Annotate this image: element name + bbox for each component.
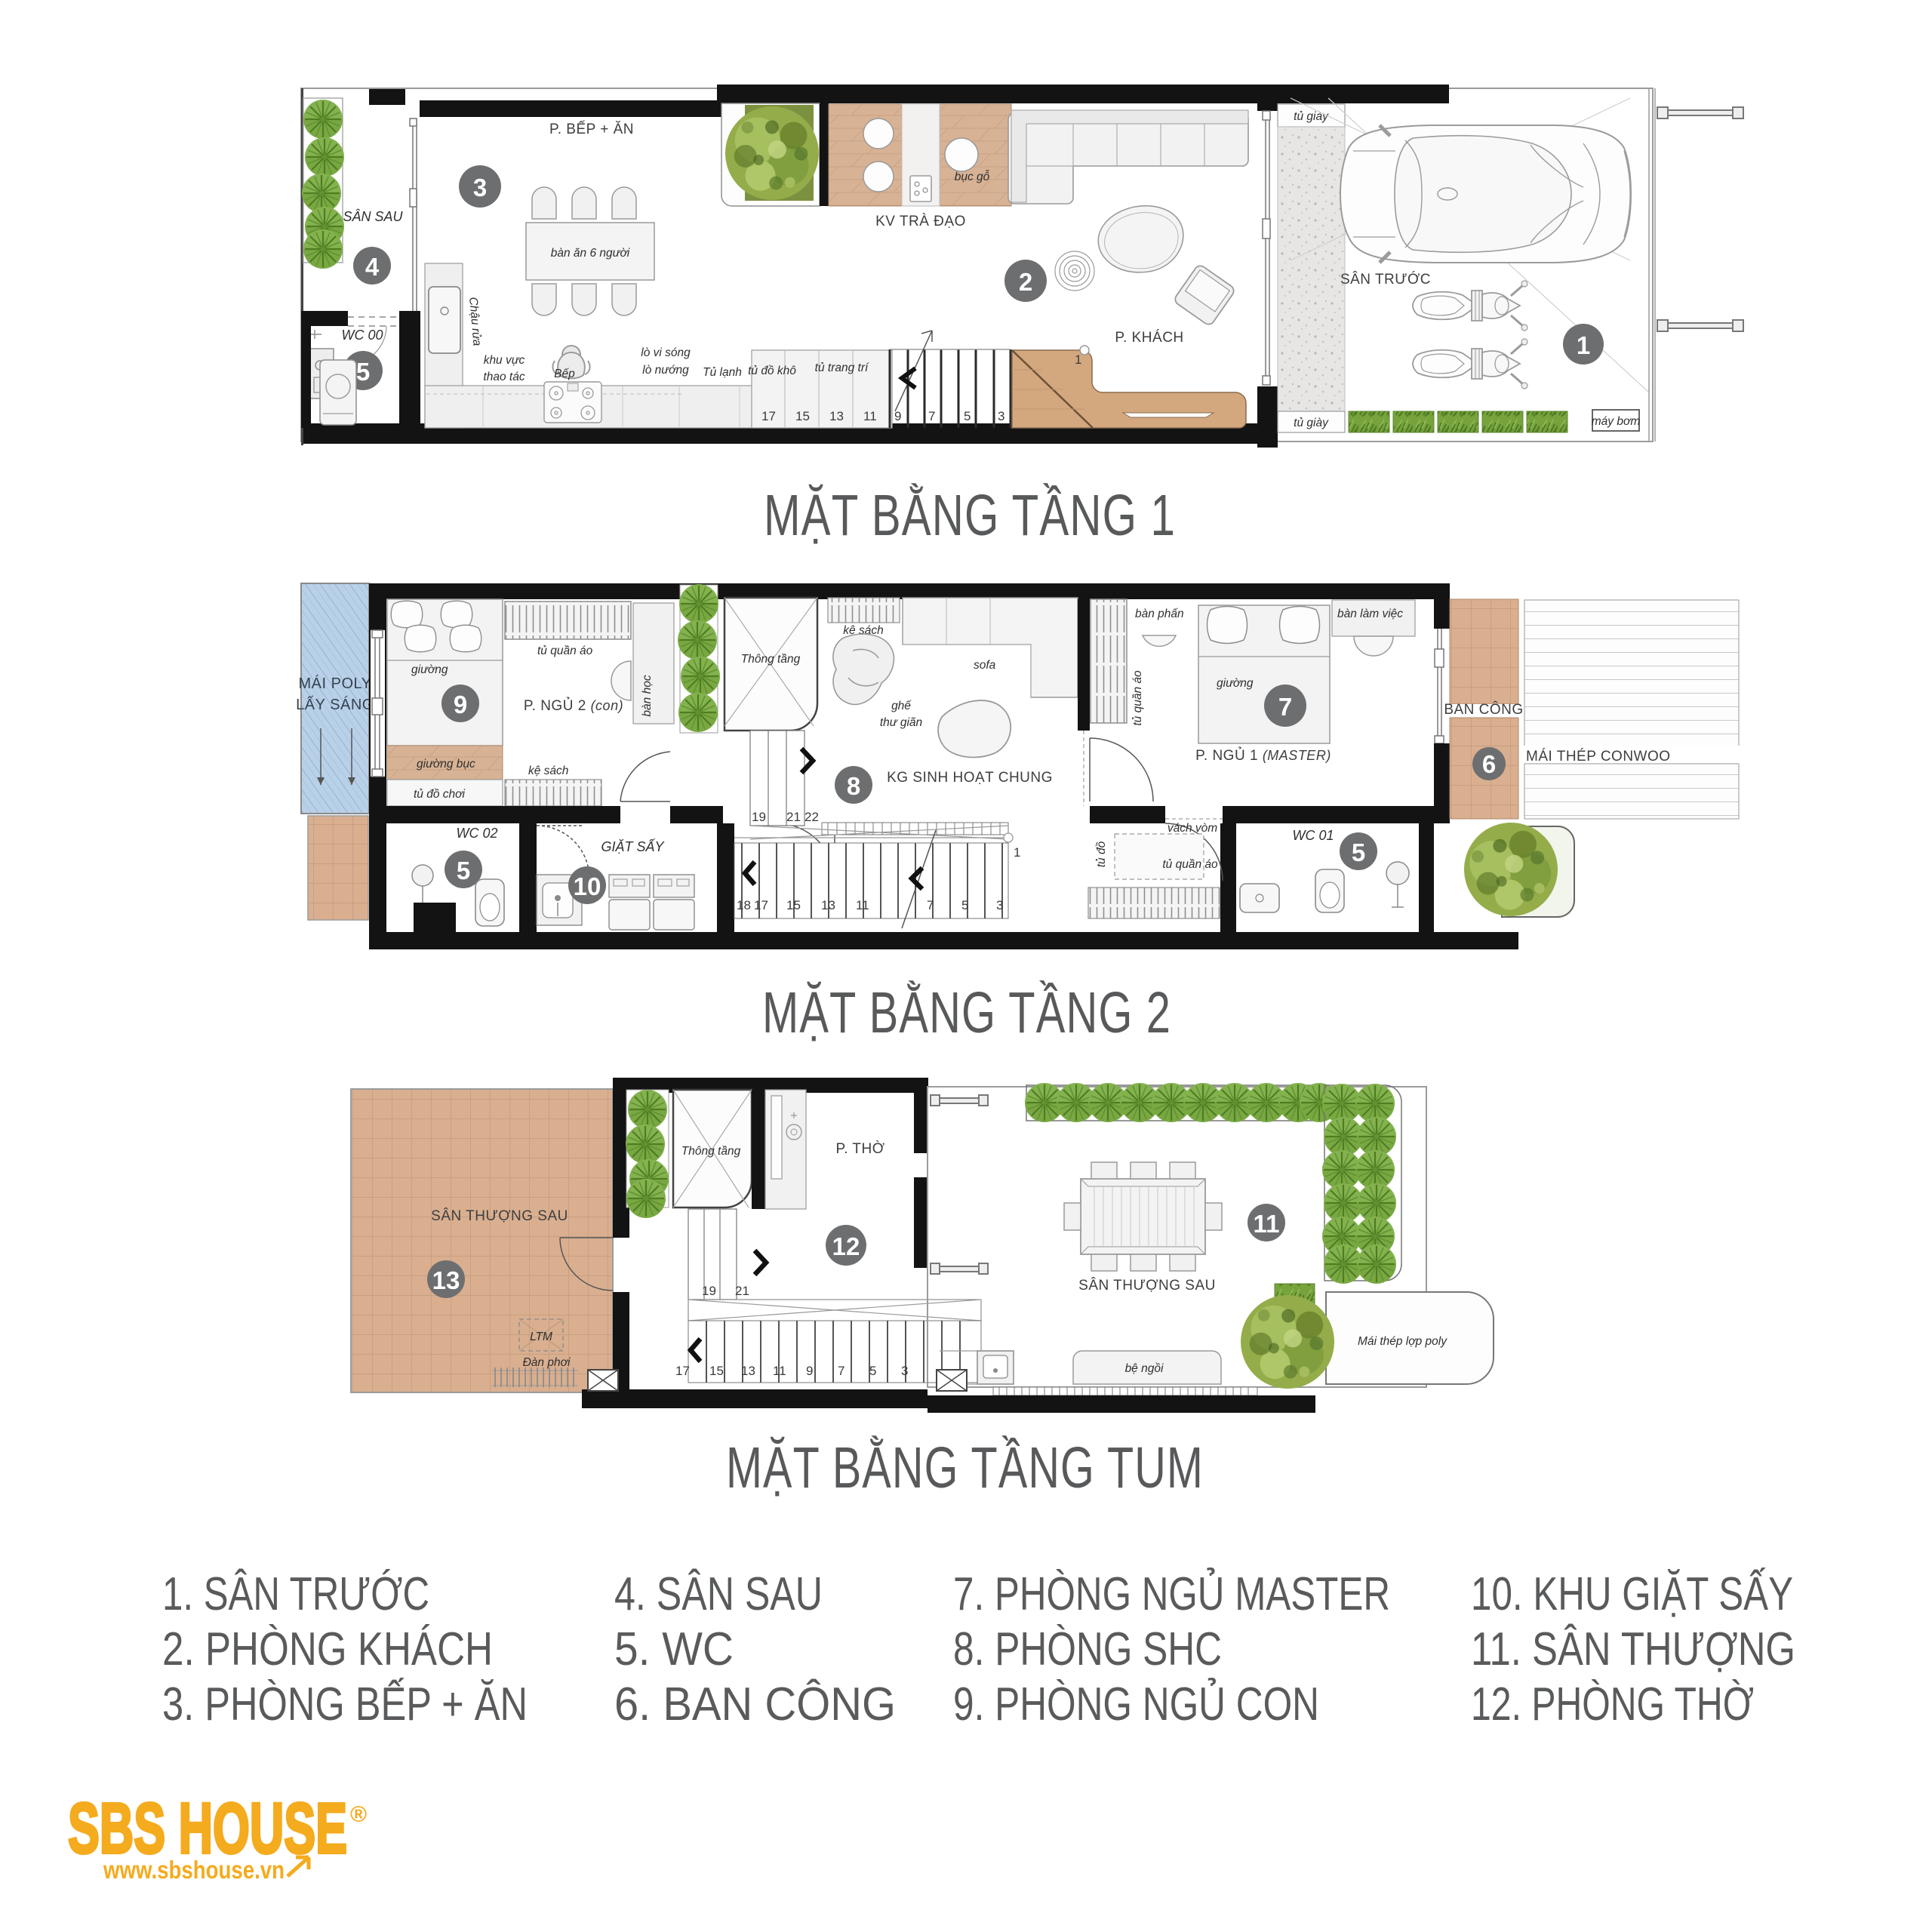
svg-text:Bếp: Bếp (554, 368, 575, 380)
svg-text:thao tác: thao tác (483, 371, 525, 383)
svg-text:15: 15 (795, 409, 810, 423)
svg-text:17: 17 (761, 409, 776, 423)
svg-text:Mái thép lợp poly: Mái thép lợp poly (1358, 1335, 1447, 1348)
svg-text:13: 13 (432, 1266, 460, 1294)
svg-text:8: 8 (847, 772, 860, 800)
svg-text:Thông tầng: Thông tầng (741, 653, 801, 666)
svg-text:5: 5 (961, 898, 968, 912)
svg-text:tủ đồ chơi: tủ đồ chơi (414, 788, 466, 801)
svg-text:1: 1 (1075, 352, 1081, 367)
svg-text:khu vực: khu vực (484, 354, 525, 367)
svg-text:tủ đồ: tủ đồ (1095, 841, 1108, 867)
svg-text:4. SÂN SAU: 4. SÂN SAU (614, 1568, 823, 1620)
svg-text:tủ quần áo: tủ quần áo (1131, 670, 1144, 726)
svg-text:tủ quần áo: tủ quần áo (537, 645, 593, 657)
svg-text:ghế: ghế (891, 700, 912, 712)
svg-text:3: 3 (996, 898, 1003, 912)
svg-text:P. NGỦ 2 (con): P. NGỦ 2 (con) (524, 697, 623, 714)
svg-text:15: 15 (709, 1364, 724, 1378)
svg-text:MẶT BẰNG TẦNG 1: MẶT BẰNG TẦNG 1 (764, 482, 1176, 548)
svg-text:9: 9 (894, 409, 901, 423)
svg-text:8. PHÒNG SHC: 8. PHÒNG SHC (953, 1623, 1222, 1675)
svg-text:SÂN TRƯỚC: SÂN TRƯỚC (1340, 271, 1431, 288)
svg-text:MẶT BẰNG TẦNG 2: MẶT BẰNG TẦNG 2 (762, 980, 1171, 1045)
svg-text:4: 4 (365, 253, 380, 281)
svg-text:giường: giường (411, 663, 448, 676)
svg-text:www.sbshouse.vn: www.sbshouse.vn (103, 1856, 285, 1884)
svg-text:bục gỗ: bục gỗ (955, 171, 990, 183)
svg-text:1. SÂN TRƯỚC: 1. SÂN TRƯỚC (162, 1568, 429, 1620)
svg-text:5: 5 (356, 358, 370, 386)
svg-text:11: 11 (863, 409, 877, 423)
svg-text:P. BẾP + ĂN: P. BẾP + ĂN (549, 121, 634, 137)
svg-text:tủ giày: tủ giày (1294, 417, 1329, 429)
svg-text:SÂN THƯỢNG SAU: SÂN THƯỢNG SAU (1078, 1277, 1216, 1294)
svg-text:21: 21 (735, 1284, 749, 1298)
svg-text:MẶT BẰNG TẦNG TUM: MẶT BẰNG TẦNG TUM (726, 1435, 1204, 1500)
svg-text:11: 11 (1254, 1210, 1280, 1238)
svg-text:17: 17 (675, 1364, 690, 1378)
svg-text:19: 19 (752, 810, 766, 824)
svg-text:6: 6 (1482, 750, 1496, 778)
svg-text:MÁI POLY: MÁI POLY (299, 675, 372, 692)
svg-text:3: 3 (473, 174, 487, 202)
svg-text:BAN CÔNG: BAN CÔNG (1444, 701, 1523, 718)
svg-text:7: 7 (927, 898, 934, 912)
svg-text:7: 7 (928, 409, 935, 423)
svg-text:5: 5 (869, 1364, 876, 1378)
svg-text:bàn phấn: bàn phấn (1135, 608, 1184, 620)
svg-text:LTM: LTM (530, 1331, 552, 1343)
svg-text:22: 22 (804, 810, 819, 824)
svg-text:P. THỜ: P. THỜ (835, 1140, 884, 1157)
svg-text:2. PHÒNG KHÁCH: 2. PHÒNG KHÁCH (162, 1623, 493, 1675)
svg-text:5: 5 (457, 857, 470, 884)
svg-text:5: 5 (1352, 838, 1365, 866)
svg-text:10: 10 (574, 872, 601, 900)
svg-text:15: 15 (786, 898, 801, 912)
svg-text:13: 13 (821, 898, 835, 912)
svg-text:Tủ lạnh: Tủ lạnh (703, 366, 742, 379)
svg-text:máy bơm: máy bơm (1592, 415, 1641, 428)
svg-text:tủ trang trí: tủ trang trí (815, 361, 869, 374)
svg-text:thư giãn: thư giãn (880, 716, 922, 729)
svg-text:13: 13 (741, 1364, 755, 1378)
svg-text:GIẶT SẤY: GIẶT SẤY (601, 838, 665, 854)
svg-text:sofa: sofa (974, 659, 996, 672)
svg-text:2: 2 (1019, 268, 1032, 296)
svg-text:3: 3 (901, 1364, 908, 1378)
svg-text:17: 17 (754, 898, 768, 912)
svg-text:bàn ăn 6 người: bàn ăn 6 người (551, 247, 630, 260)
svg-text:21: 21 (786, 810, 801, 824)
svg-text:18: 18 (737, 898, 751, 912)
svg-text:kệ sách: kệ sách (528, 764, 568, 777)
svg-text:7: 7 (1278, 693, 1292, 721)
svg-text:9. PHÒNG NGỦ CON: 9. PHÒNG NGỦ CON (953, 1678, 1319, 1730)
svg-text:P. NGỦ 1 (MASTER): P. NGỦ 1 (MASTER) (1195, 747, 1331, 764)
svg-text:®: ® (350, 1802, 367, 1827)
svg-text:3: 3 (998, 409, 1004, 423)
svg-text:11. SÂN THƯỢNG: 11. SÂN THƯỢNG (1471, 1623, 1795, 1675)
svg-text:6. BAN CÔNG: 6. BAN CÔNG (614, 1678, 896, 1730)
svg-text:1: 1 (1577, 331, 1590, 359)
svg-text:KV TRÀ ĐẠO: KV TRÀ ĐẠO (875, 214, 966, 229)
svg-text:bàn học: bàn học (641, 675, 654, 716)
svg-text:vách vòm: vách vòm (1168, 822, 1217, 835)
svg-text:tủ giày: tủ giày (1294, 110, 1329, 123)
svg-text:9: 9 (454, 691, 467, 718)
svg-text:MÁI THÉP CONWOO: MÁI THÉP CONWOO (1526, 749, 1671, 764)
svg-text:giường bục: giường bục (417, 758, 475, 771)
svg-text:WC 00: WC 00 (341, 328, 383, 343)
svg-text:5: 5 (964, 409, 971, 423)
svg-text:Đàn phơi: Đàn phơi (523, 1356, 571, 1369)
svg-text:LẤY SÁNG: LẤY SÁNG (296, 696, 374, 713)
svg-text:giường: giường (1217, 677, 1254, 690)
svg-text:19: 19 (702, 1284, 716, 1298)
svg-text:bệ ngồi: bệ ngồi (1125, 1362, 1164, 1375)
svg-text:SÂN SAU: SÂN SAU (343, 209, 403, 224)
svg-text:Thông tầng: Thông tầng (681, 1145, 741, 1158)
svg-text:lò nướng: lò nướng (642, 364, 689, 377)
svg-text:3. PHÒNG BẾP + ĂN: 3. PHÒNG BẾP + ĂN (162, 1678, 528, 1730)
svg-text:12. PHÒNG THỜ: 12. PHÒNG THỜ (1471, 1678, 1754, 1730)
svg-text:9: 9 (806, 1364, 813, 1378)
svg-text:lò vi sóng: lò vi sóng (641, 346, 691, 359)
svg-text:tủ quần áo: tủ quần áo (1162, 858, 1218, 871)
svg-text:13: 13 (829, 409, 844, 423)
svg-text:10. KHU GIẶT SẤY: 10. KHU GIẶT SẤY (1471, 1568, 1793, 1620)
svg-text:KG SINH HOẠT CHUNG: KG SINH HOẠT CHUNG (887, 770, 1053, 786)
svg-text:WC 02: WC 02 (456, 826, 497, 841)
svg-text:1: 1 (1014, 845, 1020, 860)
svg-text:WC 01: WC 01 (1292, 828, 1334, 843)
svg-text:7: 7 (838, 1364, 844, 1378)
svg-text:tủ đồ khô: tủ đồ khô (748, 365, 796, 377)
svg-text:12: 12 (832, 1232, 860, 1260)
svg-text:11: 11 (856, 898, 869, 912)
svg-text:11: 11 (773, 1364, 786, 1378)
svg-text:P. KHÁCH: P. KHÁCH (1115, 330, 1183, 346)
svg-text:bàn làm việc: bàn làm việc (1337, 608, 1403, 620)
svg-text:SÂN THƯỢNG SAU: SÂN THƯỢNG SAU (431, 1207, 568, 1224)
svg-text:7. PHÒNG NGỦ MASTER: 7. PHÒNG NGỦ MASTER (953, 1568, 1390, 1620)
svg-text:5. WC: 5. WC (614, 1623, 734, 1675)
